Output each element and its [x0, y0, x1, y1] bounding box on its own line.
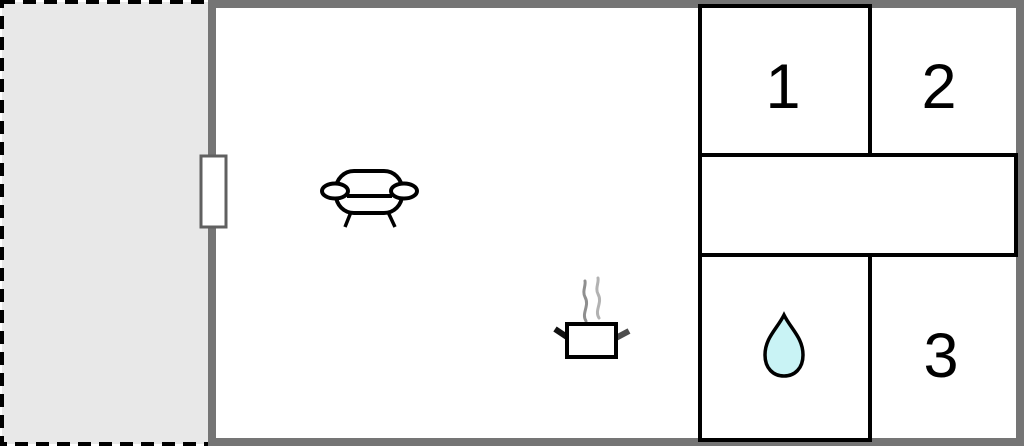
hallway: [700, 155, 1016, 255]
floor-plan-canvas: 1 2 3: [0, 0, 1024, 446]
steam-wave-right: [597, 278, 600, 318]
steam-wave-left: [584, 281, 587, 321]
room-3-label: 3: [923, 321, 958, 391]
terrace-dashed-outline: [2, 2, 214, 444]
sofa-icon: [322, 171, 417, 227]
sofa-leg-right: [388, 212, 395, 227]
window-door-icon: [201, 156, 226, 227]
steam-icon: [584, 278, 600, 321]
sofa-leg-left: [345, 212, 351, 227]
room-1-label: 1: [765, 52, 800, 122]
wall-bottom: [208, 438, 1024, 446]
room-2-label: 2: [921, 52, 956, 122]
sofa-armrest-left: [322, 184, 348, 199]
sofa-armrest-right: [391, 184, 417, 199]
cooking-pot-icon: [555, 324, 629, 357]
wall-top: [208, 0, 1024, 8]
floor-plan: 1 2 3: [0, 0, 1024, 446]
terrace-area: [2, 2, 214, 444]
rooms: [700, 6, 1016, 440]
pot-body: [567, 324, 616, 357]
